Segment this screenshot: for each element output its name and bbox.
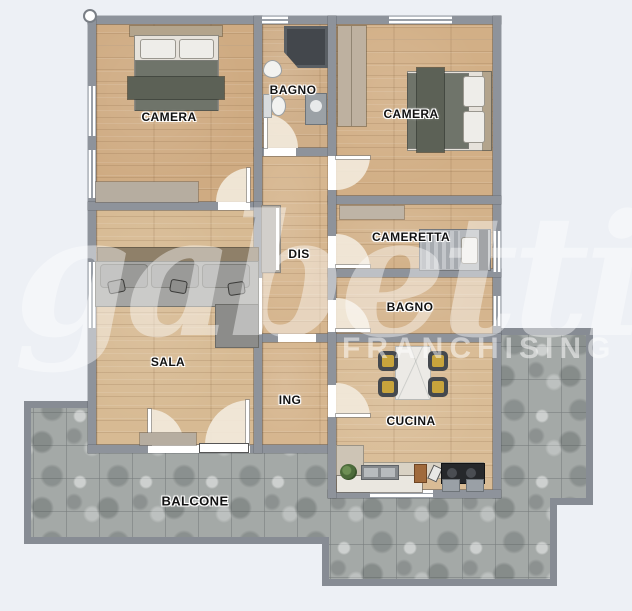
door-leaf-balcony-right xyxy=(246,400,249,445)
cutting-board xyxy=(414,464,427,483)
wall-bagno1-east xyxy=(328,16,336,156)
chair-cushion xyxy=(432,355,444,367)
window-camera1-a xyxy=(88,86,96,136)
wall-dis-east-3 xyxy=(328,332,336,385)
door-gap-bagno1 xyxy=(264,148,296,156)
label-ing: ING xyxy=(279,393,302,407)
corner-marker xyxy=(83,9,97,23)
door-gap-cucina xyxy=(328,385,336,417)
single-bed-headboard xyxy=(479,230,488,270)
label-camera-1: CAMERA xyxy=(141,110,196,124)
wall-cameretta-south xyxy=(328,269,501,277)
bed-runner xyxy=(128,77,224,99)
plant xyxy=(340,464,357,480)
wall-dis-east-1 xyxy=(328,190,336,236)
chair-cushion xyxy=(382,381,394,393)
toilet xyxy=(271,96,286,116)
window-bagno1 xyxy=(262,16,288,24)
sofa-pillow xyxy=(169,279,188,295)
pillow xyxy=(179,39,214,59)
wall-ing-west xyxy=(254,334,262,453)
wall-left xyxy=(88,16,96,453)
door-gap-camera2 xyxy=(328,156,336,190)
door-gap-bagno2 xyxy=(328,300,336,332)
wall-camera1-east xyxy=(254,16,262,210)
door-gap-cameretta xyxy=(328,236,336,268)
wardrobe-door-line xyxy=(351,26,352,126)
door-leaf-bagno2 xyxy=(336,329,370,332)
wall-bagno2-south xyxy=(316,334,501,342)
sofa-console xyxy=(98,248,258,263)
chair-cushion xyxy=(432,381,444,393)
sink-basin xyxy=(364,468,378,477)
cameretta-shelf xyxy=(340,206,404,219)
stool xyxy=(467,480,483,491)
floor-plan: gabetti FRANCHISING CAMERA BAGNO CAMERA … xyxy=(0,0,632,611)
label-cameretta: CAMERETTA xyxy=(372,230,450,244)
entrance-threshold xyxy=(200,444,248,452)
sink-basin xyxy=(381,468,395,477)
window-bagno2 xyxy=(493,296,501,326)
label-bagno-2: BAGNO xyxy=(387,300,434,314)
sink-basin xyxy=(310,100,322,112)
label-bagno-1: BAGNO xyxy=(270,83,317,97)
wall-camera2-south xyxy=(328,196,501,204)
pillow xyxy=(463,111,485,143)
wall-ing-east xyxy=(328,417,336,498)
pillow xyxy=(140,39,176,59)
sofa-chaise xyxy=(216,305,258,347)
camera1-sideboard xyxy=(96,182,198,202)
dining-table xyxy=(396,347,430,399)
label-cucina: CUCINA xyxy=(386,414,435,428)
door-leaf-camera1 xyxy=(247,168,250,202)
bidet xyxy=(263,60,282,78)
door-gap-camera1 xyxy=(218,202,250,210)
sala-radiator xyxy=(140,433,196,445)
door-leaf-camera2 xyxy=(336,156,370,159)
window-camera1-b xyxy=(88,150,96,198)
label-dis: DIS xyxy=(288,247,309,261)
window-camera2 xyxy=(389,16,452,24)
stool xyxy=(443,480,459,491)
bed-headboard xyxy=(130,26,222,36)
wardrobe xyxy=(338,26,366,126)
label-sala: SALA xyxy=(151,355,185,369)
door-leaf-cucina xyxy=(336,414,370,417)
burner xyxy=(447,468,457,478)
label-camera-2: CAMERA xyxy=(383,107,438,121)
sliding-door-track xyxy=(276,208,279,270)
window-cameretta xyxy=(493,231,501,272)
pillow xyxy=(463,76,485,107)
pillow xyxy=(461,237,478,264)
wall-dis-east-2 xyxy=(328,268,336,300)
door-leaf-bagno1 xyxy=(264,114,267,148)
opening-dis-ing xyxy=(278,334,316,342)
label-balcone: BALCONE xyxy=(161,494,228,509)
door-leaf-cameretta xyxy=(336,265,370,268)
burner xyxy=(466,468,476,478)
sofa-pillow xyxy=(227,281,246,296)
window-sala xyxy=(88,262,96,328)
chair-cushion xyxy=(382,355,394,367)
